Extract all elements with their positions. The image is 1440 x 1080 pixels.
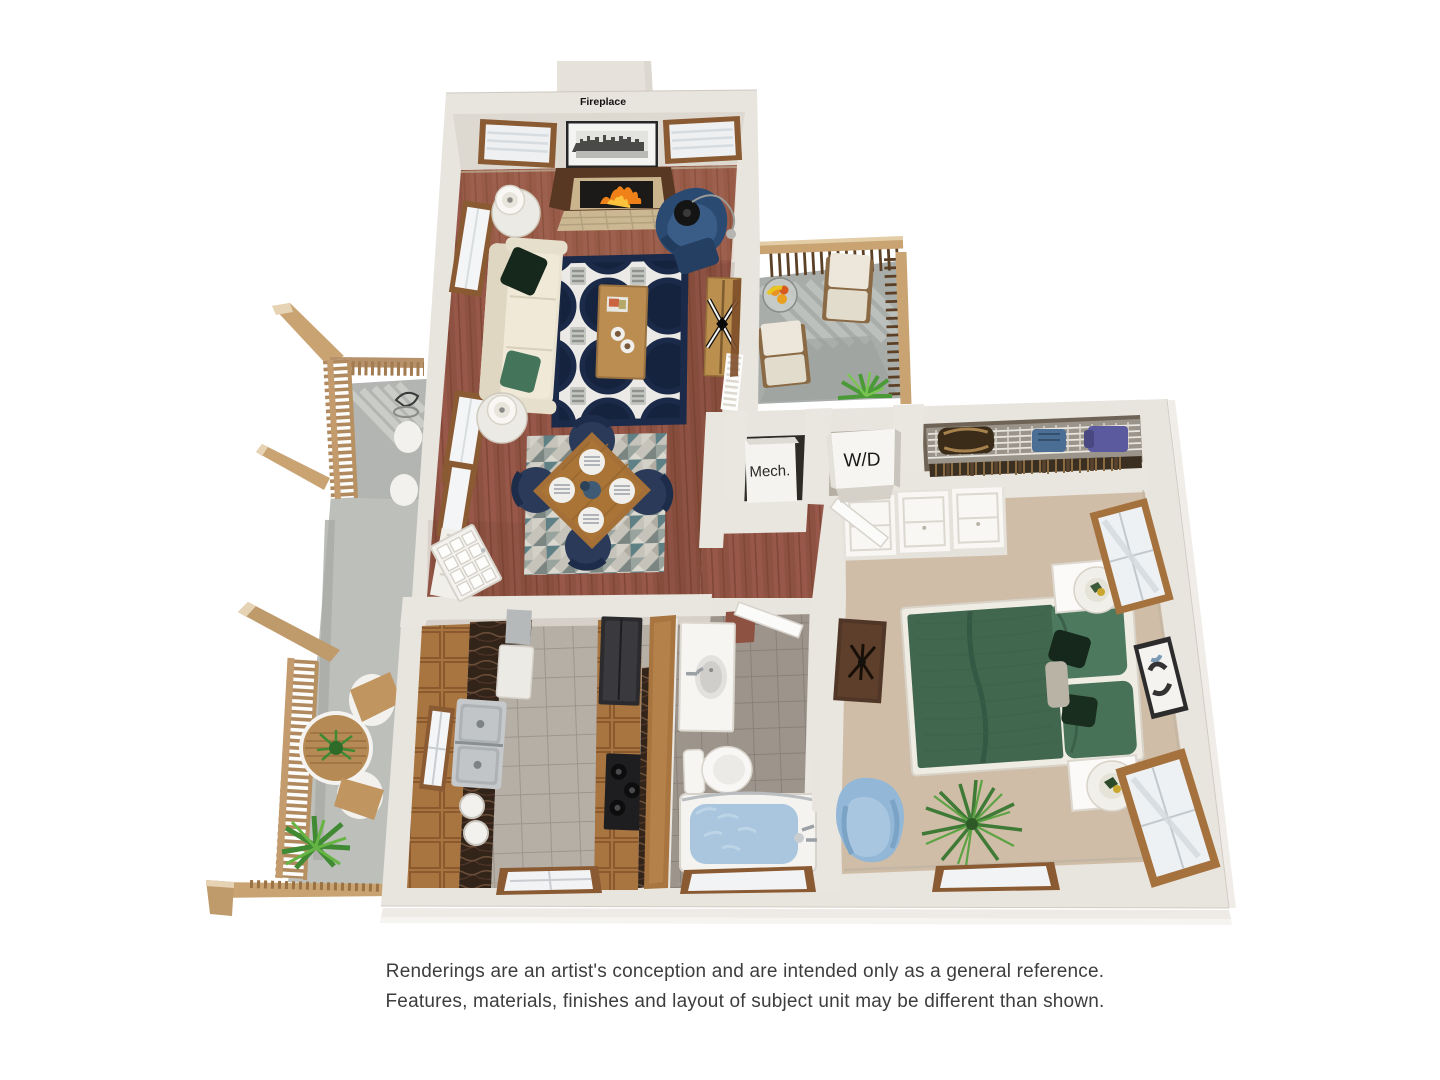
svg-text:W/D: W/D — [843, 449, 881, 471]
svg-text:Mech.: Mech. — [749, 462, 790, 480]
svg-text:Fireplace: Fireplace — [580, 96, 626, 108]
